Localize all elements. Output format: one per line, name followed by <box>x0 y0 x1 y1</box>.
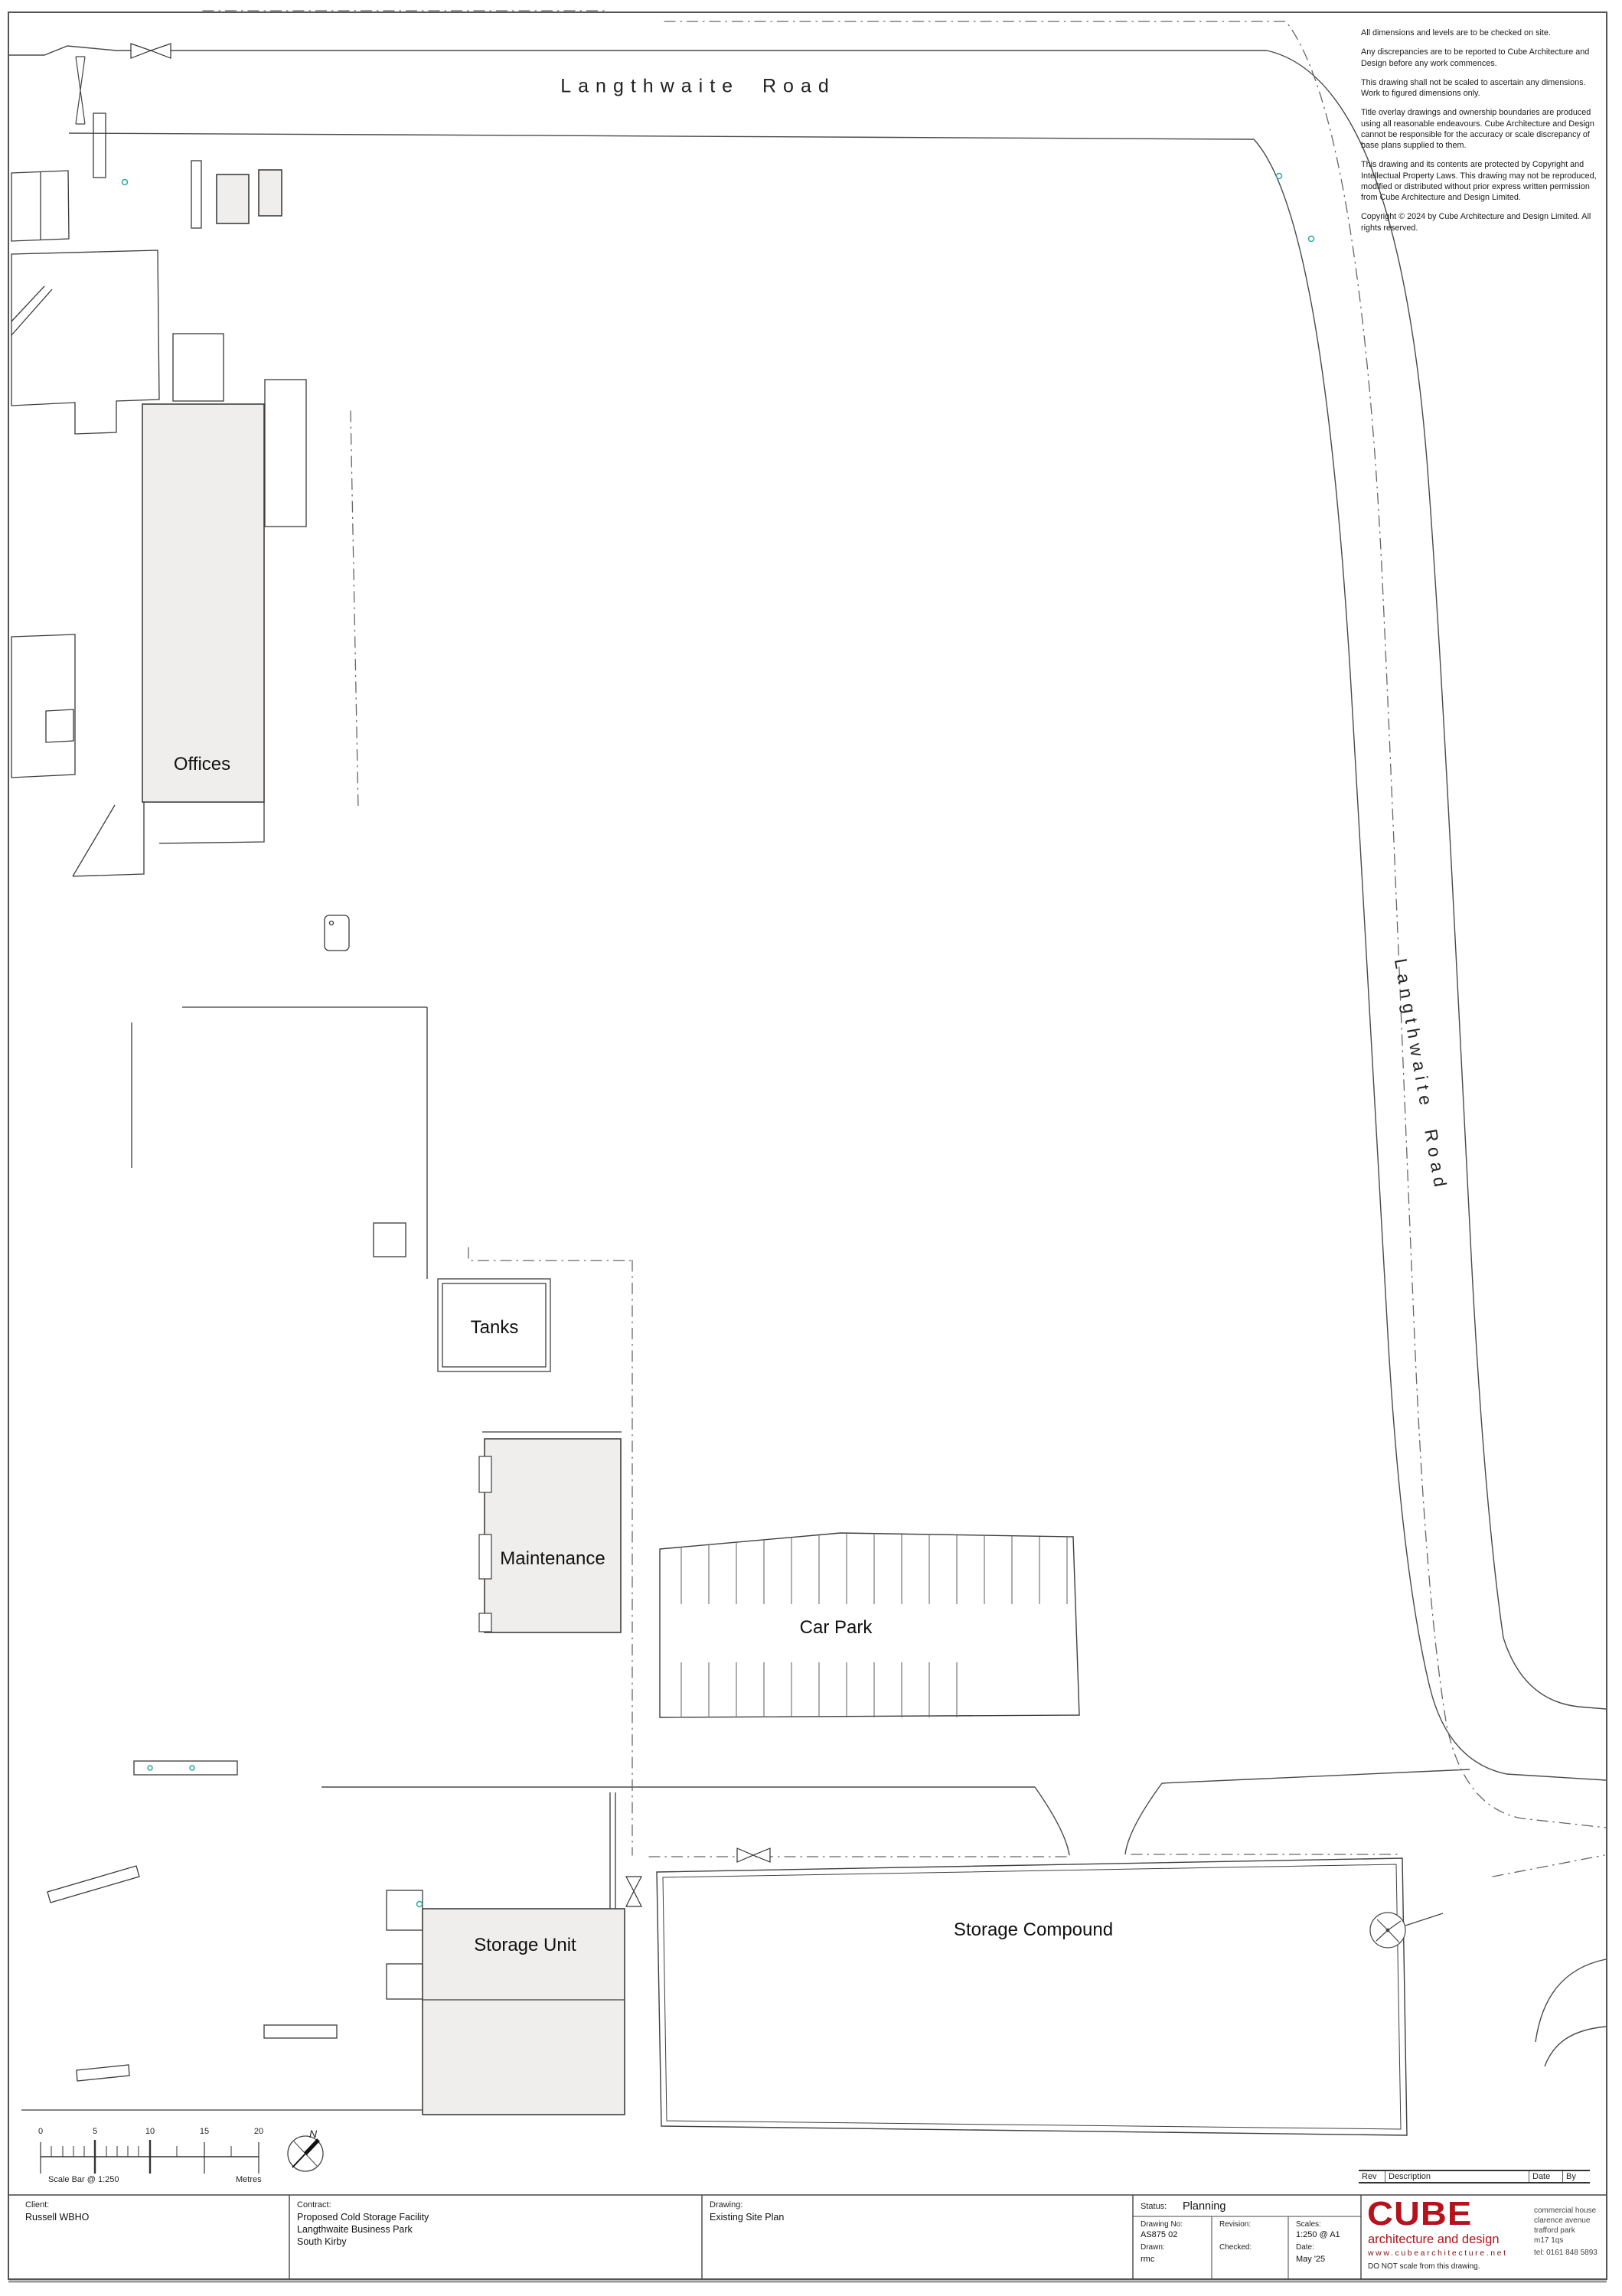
label-storage-compound: Storage Compound <box>954 1919 1113 1941</box>
status-label: Status: <box>1141 2202 1167 2211</box>
scale-tick-15: 15 <box>200 2127 209 2136</box>
label-maintenance: Maintenance <box>500 1548 605 1570</box>
date-label: Date: <box>1296 2243 1314 2252</box>
by-col-header: By <box>1562 2171 1590 2182</box>
storage-compound-outline <box>657 1858 1407 2135</box>
cube-website: www.cubearchitecture.net <box>1368 2249 1508 2258</box>
contract-line-2: Langthwaite Business Park <box>297 2224 413 2235</box>
general-notes: All dimensions and levels are to be chec… <box>1361 28 1600 242</box>
do-not-scale-note: DO NOT scale from this drawing. <box>1368 2262 1480 2271</box>
label-storage-unit: Storage Unit <box>474 1935 576 1956</box>
client-label: Client: <box>25 2200 49 2210</box>
outbuilding-2 <box>259 170 282 216</box>
scale-bar <box>41 2140 259 2174</box>
client-value: Russell WBHO <box>25 2212 89 2223</box>
outbuilding-1 <box>217 174 249 223</box>
date-value: May '25 <box>1296 2255 1325 2264</box>
drawing-label: Drawing: <box>710 2200 742 2210</box>
road-label-top: Langthwaite Road <box>560 76 836 98</box>
cube-phone: tel: 0161 848 5893 <box>1534 2249 1598 2257</box>
cube-logo: CUBE <box>1367 2198 1529 2229</box>
existing-site-linework <box>11 113 622 2110</box>
scale-bar-caption: Scale Bar @ 1:250 <box>48 2175 119 2184</box>
revision-label: Revision: <box>1219 2220 1251 2229</box>
label-car-park: Car Park <box>800 1617 873 1639</box>
scales-value: 1:250 @ A1 <box>1296 2230 1340 2239</box>
date-col-header: Date <box>1529 2171 1562 2182</box>
drawn-label: Drawn: <box>1141 2243 1165 2252</box>
status-value: Planning <box>1183 2200 1225 2213</box>
note: Title overlay drawings and ownership bou… <box>1361 107 1600 151</box>
label-tanks: Tanks <box>471 1317 519 1339</box>
drawing-sheet: Langthwaite Road Langthwaite Road Office… <box>0 0 1622 2296</box>
scale-tick-20: 20 <box>254 2127 263 2136</box>
contract-line-3: South Kirby <box>297 2236 347 2247</box>
revision-table: Rev Description Date By <box>1359 2170 1590 2183</box>
address-line: trafford park <box>1534 2226 1596 2236</box>
drawing-no-value: AS875 02 <box>1141 2230 1177 2239</box>
scale-tick-0: 0 <box>38 2127 43 2136</box>
site-plan-linework <box>0 0 1622 2296</box>
rev-col-header: Rev <box>1359 2171 1385 2182</box>
scales-label: Scales: <box>1296 2220 1321 2229</box>
scale-bar-unit: Metres <box>236 2175 262 2184</box>
note: Any discrepancies are to be reported to … <box>1361 47 1600 69</box>
checked-label: Checked: <box>1219 2243 1252 2252</box>
drawn-value: rmc <box>1141 2255 1154 2264</box>
tree-symbol <box>1370 1913 1443 1948</box>
drawing-value: Existing Site Plan <box>710 2212 784 2223</box>
maintenance-building <box>485 1439 621 1632</box>
cube-address: commercial house clarence avenue traffor… <box>1534 2206 1596 2245</box>
offices-building <box>142 404 264 802</box>
buildings <box>142 170 625 2115</box>
north-label: N <box>309 2128 317 2140</box>
contract-label: Contract: <box>297 2200 331 2210</box>
address-line: commercial house <box>1534 2206 1596 2216</box>
scale-tick-5: 5 <box>93 2127 97 2136</box>
address-line: clarence avenue <box>1534 2216 1596 2226</box>
label-offices: Offices <box>174 754 230 775</box>
scale-tick-10: 10 <box>145 2127 155 2136</box>
note: This drawing and its contents are protec… <box>1361 159 1600 203</box>
road-linework <box>9 46 1606 2066</box>
contract-line-1: Proposed Cold Storage Facility <box>297 2212 429 2223</box>
note: This drawing shall not be scaled to asce… <box>1361 77 1600 99</box>
note: All dimensions and levels are to be chec… <box>1361 28 1600 38</box>
cube-tagline: architecture and design <box>1368 2232 1500 2247</box>
drawing-no-label: Drawing No: <box>1141 2220 1183 2229</box>
north-arrow <box>288 2136 323 2171</box>
pylon-symbol <box>76 57 85 124</box>
note: Copyright © 2024 by Cube Architecture an… <box>1361 211 1600 233</box>
address-line: m17 1qs <box>1534 2236 1596 2245</box>
description-col-header: Description <box>1385 2171 1529 2182</box>
